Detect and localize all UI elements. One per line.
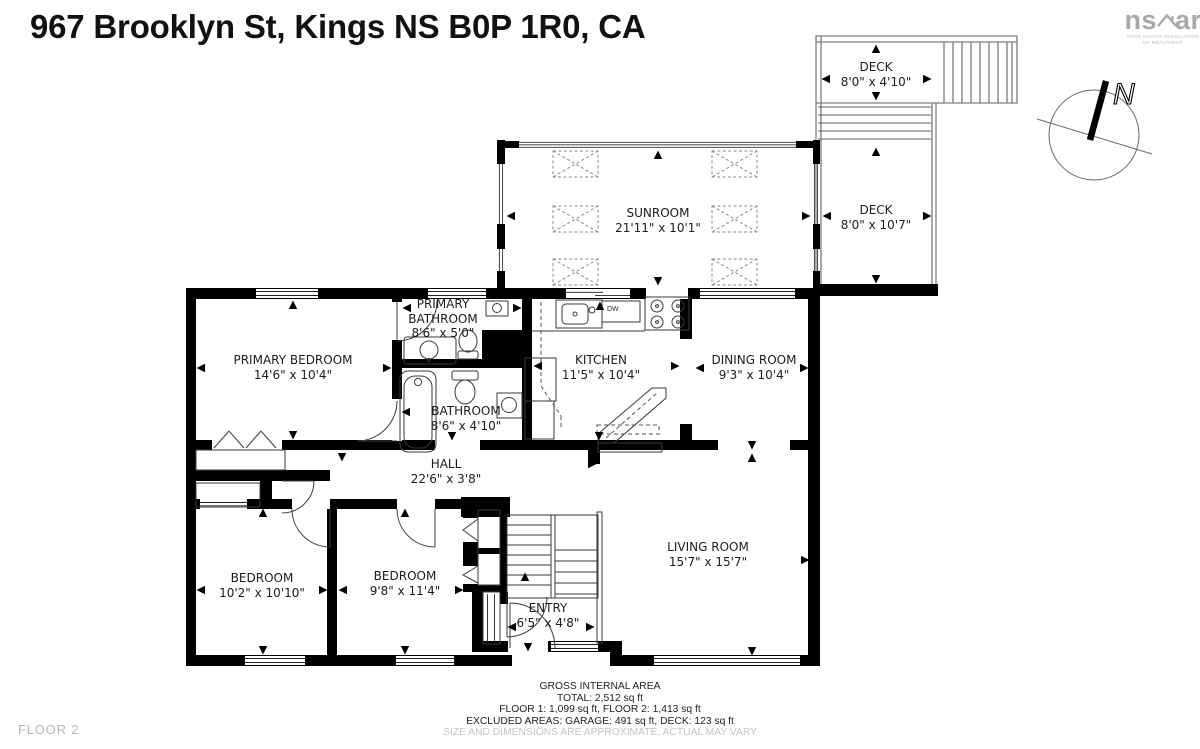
deck-boards (818, 107, 932, 139)
room-label-bathroom: BATHROOM 8'6" x 4'10" (431, 404, 502, 433)
room-dims: 8'6" x 4'10" (431, 419, 502, 434)
logo-caption-line2: OF REALTORS® (1126, 40, 1200, 45)
floor-areas: FLOOR 1: 1,099 sq ft, FLOOR 2: 1,413 sq … (430, 704, 770, 716)
room-dims: 6'5" x 4'8" (517, 616, 580, 631)
kitchen-sink (556, 300, 602, 328)
room-name: ENTRY (517, 601, 580, 616)
room-dims: 22'6" x 3'8" (411, 472, 482, 487)
house-roof-icon (1156, 6, 1176, 32)
nsar-logo: ns ar NOVA SCOTIA ASSOCIATION OF REALTOR… (1126, 6, 1200, 46)
floor-label: FLOOR 2 (18, 722, 79, 737)
primary-bedroom-door (357, 401, 397, 441)
deck-stairs (944, 42, 1007, 103)
corner-sink (486, 301, 508, 316)
room-name: PRIMARY BEDROOM (233, 353, 352, 368)
room-label-primary-bedroom: PRIMARY BEDROOM 14'6" x 10'4" (233, 353, 352, 382)
room-name: KITCHEN (562, 353, 640, 368)
room-label-bedroom-left: BEDROOM 10'2" x 10'10" (219, 571, 305, 600)
room-name: BEDROOM (219, 571, 305, 586)
room-dims: 9'8" x 11'4" (370, 584, 441, 599)
room-dims: 15'7" x 15'7" (667, 555, 749, 570)
staircase (507, 515, 598, 598)
room-label-dining-room: DINING ROOM 9'3" x 10'4" (712, 353, 797, 382)
room-label-living-room: LIVING ROOM 15'7" x 15'7" (667, 540, 749, 569)
room-dims: 10'2" x 10'10" (219, 586, 305, 601)
room-dims: 8'6" x 5'0" (401, 326, 485, 341)
room-label-hall: HALL 22'6" x 3'8" (411, 457, 482, 486)
compass: N (1037, 78, 1152, 180)
room-name: BATHROOM (431, 404, 502, 419)
room-label-deck-right: DECK 8'0" x 10'7" (841, 203, 912, 232)
room-label-bedroom-middle: BEDROOM 9'8" x 11'4" (370, 569, 441, 598)
room-dims: 8'0" x 4'10" (841, 75, 912, 90)
excluded-areas: EXCLUDED AREAS: GARAGE: 491 sq ft, DECK:… (430, 716, 770, 728)
room-label-deck-top: DECK 8'0" x 4'10" (841, 60, 912, 89)
room-name: SUNROOM (615, 206, 701, 221)
logo-text-ns: ns (1124, 7, 1157, 33)
room-name: PRIMARY BATHROOM (401, 297, 485, 326)
floorplan-page: 967 Brooklyn St, Kings NS B0P 1R0, CA ns… (0, 0, 1200, 749)
gross-internal-area-heading: GROSS INTERNAL AREA (430, 681, 770, 693)
room-dims: 8'0" x 10'7" (841, 218, 912, 233)
room-label-primary-bathroom: PRIMARY BATHROOM 8'6" x 5'0" (401, 297, 485, 341)
room-name: LIVING ROOM (667, 540, 749, 555)
room-dims: 9'3" x 10'4" (712, 368, 797, 383)
logo-caption-line1: NOVA SCOTIA ASSOCIATION (1126, 34, 1200, 39)
room-label-sunroom: SUNROOM 21'11" x 10'1" (615, 206, 701, 235)
room-name: BEDROOM (370, 569, 441, 584)
room-name: DECK (841, 203, 912, 218)
nsar-logo-wordmark: ns ar (1126, 6, 1200, 33)
room-label-entry: ENTRY 6'5" x 4'8" (517, 601, 580, 630)
room-name: DECK (841, 60, 912, 75)
deck-house-wall (814, 284, 938, 296)
compass-north-label: N (1113, 78, 1135, 111)
room-dims: 14'6" x 10'4" (233, 368, 352, 383)
room-label-kitchen: KITCHEN 11'5" x 10'4" (562, 353, 640, 382)
room-name: HALL (411, 457, 482, 472)
area-summary: GROSS INTERNAL AREA TOTAL: 2,512 sq ft F… (430, 681, 770, 739)
disclaimer: SIZE AND DIMENSIONS ARE APPROXIMATE, ACT… (430, 727, 770, 739)
dishwasher-label: DW (607, 306, 619, 313)
room-dims: 21'11" x 10'1" (615, 221, 701, 236)
logo-text-ar: ar (1175, 7, 1200, 33)
room-dims: 11'5" x 10'4" (562, 368, 640, 383)
chimney-block (482, 330, 526, 368)
bathroom-toilet (452, 371, 478, 404)
room-name: DINING ROOM (712, 353, 797, 368)
total-area: TOTAL: 2,512 sq ft (430, 693, 770, 705)
bedroom-left-door (292, 509, 330, 547)
